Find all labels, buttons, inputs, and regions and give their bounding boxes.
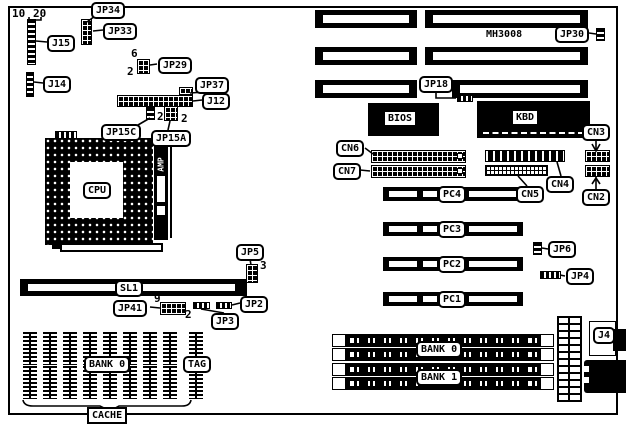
label-jp18: JP18 [419,76,453,93]
label-jp30: JP30 [555,26,589,43]
label-jp41: JP41 [113,300,147,317]
label-j4: J4 [593,327,615,344]
label-sl1: SL1 [115,280,143,297]
pin-annotation-j15-10: 10 [12,8,25,19]
label-jp29: JP29 [158,57,192,74]
label-jp34: JP34 [91,2,125,19]
label-kbd: KBD [511,109,539,126]
pin-annotation-jp15a-2: 2 [181,113,188,124]
label-jp33: JP33 [103,23,137,40]
label-jp6: JP6 [548,241,576,258]
label-jp5: JP5 [236,244,264,261]
board-model-text: MH3008 [486,29,522,40]
pin-annotation-jp15c-2: 2 [157,111,164,122]
label-pc3: PC3 [438,221,466,238]
label-jp2: JP2 [240,296,268,313]
label-cache: CACHE [87,407,127,424]
label-bios: BIOS [383,110,417,127]
label-cn4: CN4 [546,176,574,193]
pin-annotation-jp29-2: 2 [127,66,134,77]
label-tag: TAG [183,356,211,373]
label-jp15a: JP15A [151,130,191,147]
pin-annotation-j15-20: 20 [33,8,46,19]
pin-annotation-jp41-2: 2 [185,309,192,320]
pin-annotation-jp5-3: 3 [260,260,267,271]
label-jp15c: JP15C [101,124,141,141]
label-cn7: CN7 [333,163,361,180]
label-j14: J14 [43,76,71,93]
label-jp37: JP37 [195,77,229,94]
label-cache-bank0: BANK 0 [84,356,130,373]
label-simm-bank0: BANK 0 [416,341,462,358]
label-pc1: PC1 [438,291,466,308]
label-pc4: PC4 [438,186,466,203]
label-cn6: CN6 [336,140,364,157]
label-jp4: JP4 [566,268,594,285]
label-cn5: CN5 [516,186,544,203]
label-j12: J12 [202,93,230,110]
pin-annotation-jp29-6: 6 [131,48,138,59]
label-cn3: CN3 [582,124,610,141]
motherboard-diagram: 10 20 J15 JP34 JP33 J14 6 2 JP29 JP37 J1… [0,0,626,425]
label-jp3: JP3 [211,313,239,330]
label-simm-bank1: BANK 1 [416,369,462,386]
label-cpu: CPU [83,182,111,199]
label-cn2: CN2 [582,189,610,206]
pin-annotation-jp41-9: 9 [154,293,161,304]
label-j15: J15 [47,35,75,52]
label-pc2: PC2 [438,256,466,273]
